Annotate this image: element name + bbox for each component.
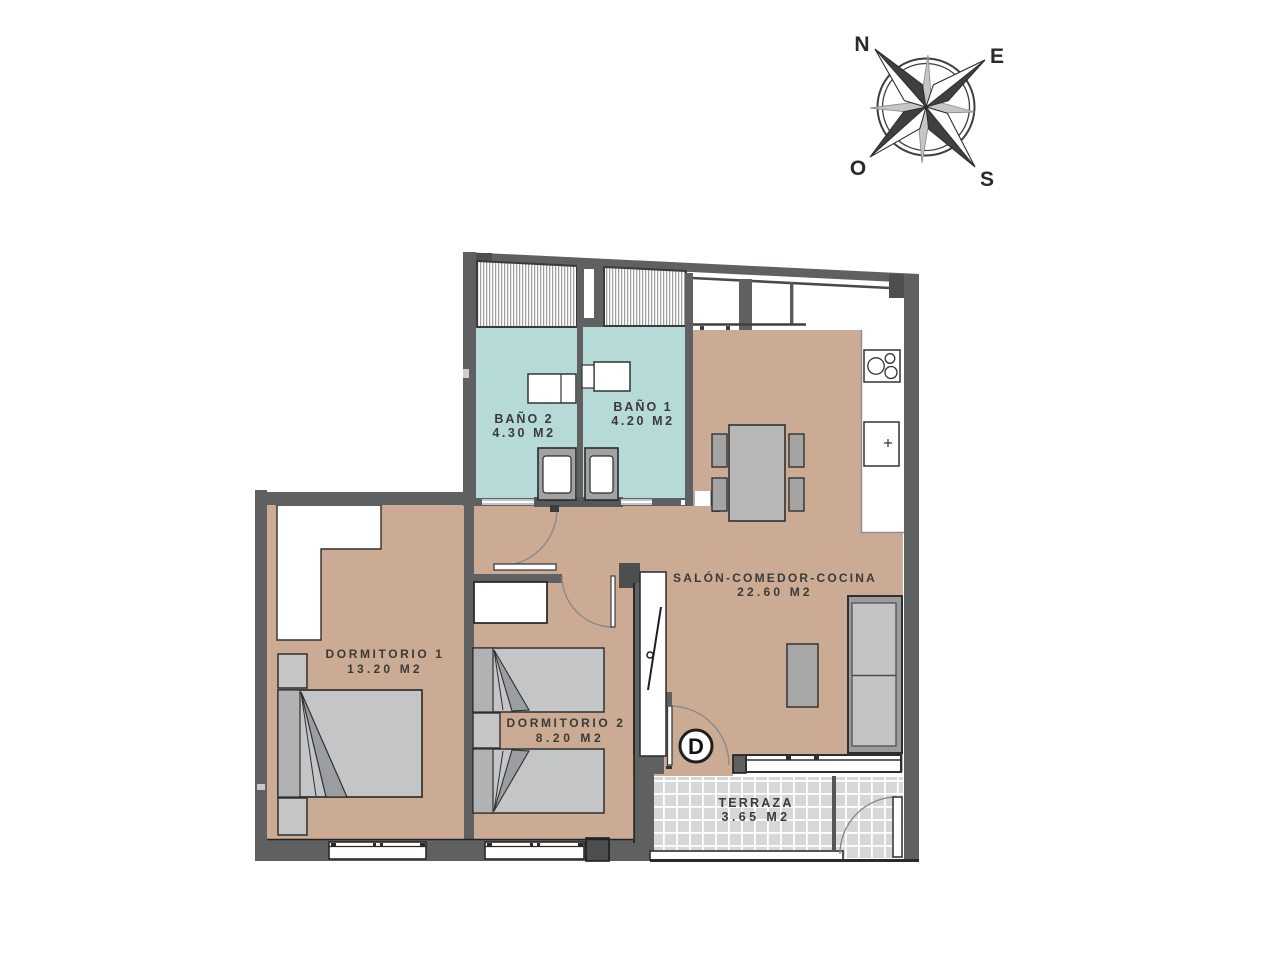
svg-text:4.30 M2: 4.30 M2 [492, 426, 555, 440]
svg-text:DORMITORIO 1: DORMITORIO 1 [326, 647, 445, 661]
svg-text:4.20 M2: 4.20 M2 [611, 414, 674, 428]
svg-text:BAÑO 2: BAÑO 2 [494, 411, 553, 426]
svg-text:E: E [990, 45, 1004, 68]
svg-text:DORMITORIO 2: DORMITORIO 2 [507, 716, 626, 730]
svg-text:TERRAZA: TERRAZA [718, 796, 793, 810]
svg-text:O: O [850, 157, 866, 180]
svg-text:SALÓN-COMEDOR-COCINA: SALÓN-COMEDOR-COCINA [673, 570, 877, 585]
svg-text:N: N [854, 33, 869, 56]
svg-text:13.20 M2: 13.20 M2 [347, 662, 423, 676]
svg-text:BAÑO 1: BAÑO 1 [613, 399, 672, 414]
svg-text:D: D [688, 734, 704, 759]
svg-text:S: S [980, 168, 994, 191]
svg-text:8.20 M2: 8.20 M2 [536, 731, 605, 745]
svg-text:3.65 M2: 3.65 M2 [722, 810, 791, 824]
svg-text:22.60 M2: 22.60 M2 [737, 585, 813, 599]
